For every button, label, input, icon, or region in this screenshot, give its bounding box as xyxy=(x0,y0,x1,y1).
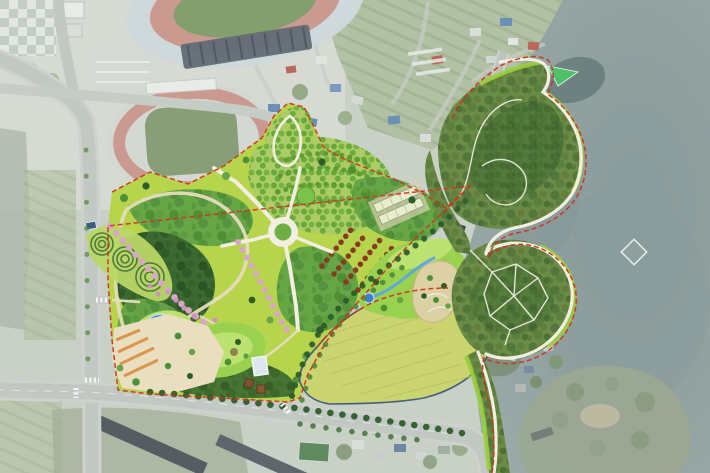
masterplan-map xyxy=(0,0,710,473)
lawn-circle xyxy=(297,187,315,205)
central-ring-plaza xyxy=(268,217,298,247)
southwest-plaza xyxy=(112,314,224,394)
pavilion xyxy=(244,378,253,387)
map-canvas xyxy=(0,0,710,473)
reflecting-pool xyxy=(252,356,268,376)
pavilion xyxy=(257,385,265,393)
